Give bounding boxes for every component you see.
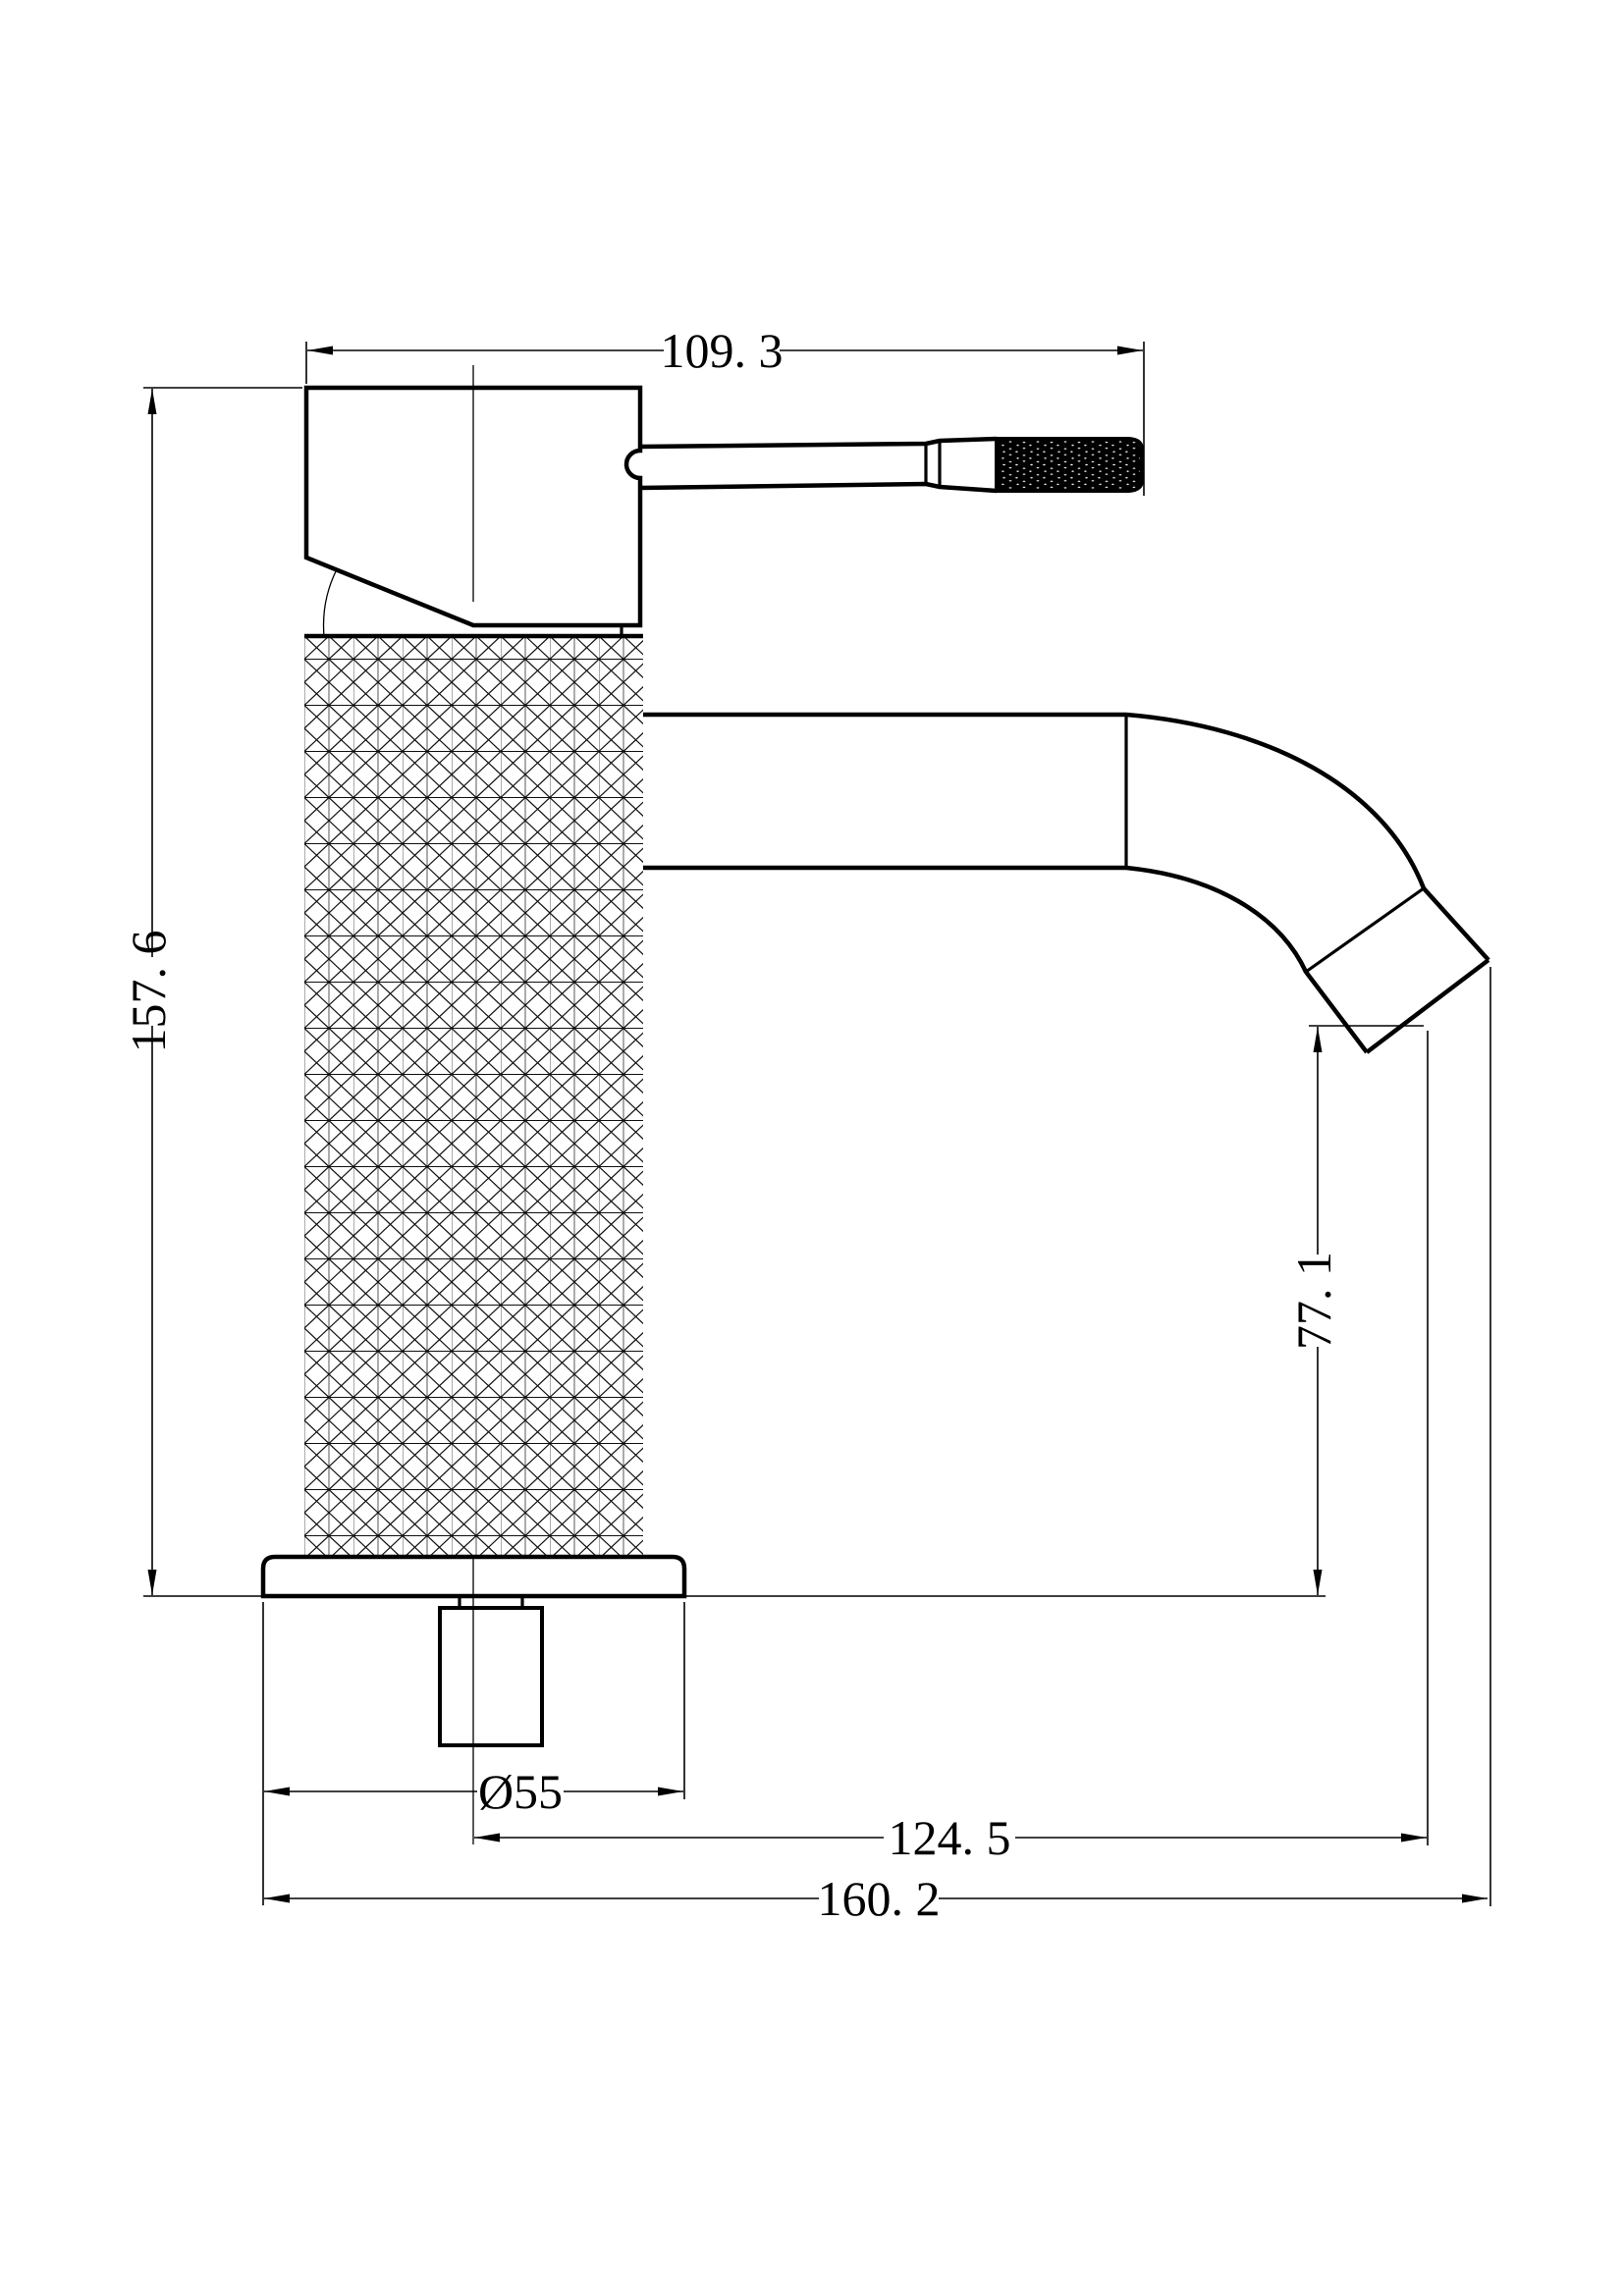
dim-overall-projection-arrow-right xyxy=(1462,1895,1488,1903)
spout xyxy=(643,715,1489,1052)
dim-spout-reach-label: 124. 5 xyxy=(889,1810,1011,1865)
dim-spout-height: 77. 1 xyxy=(1286,1026,1424,1595)
dim-handle-width-label: 109. 3 xyxy=(661,323,784,378)
spout-curve-outer xyxy=(1126,715,1489,960)
dim-overall-height-arrow-bottom xyxy=(148,1570,157,1595)
dim-spout-reach-arrow-right xyxy=(1401,1834,1427,1842)
dim-base-diameter-arrow-right xyxy=(658,1788,683,1796)
lever-grip-knurl xyxy=(997,439,1142,491)
lever-rod-bottom xyxy=(640,484,997,491)
head-bevel-arc xyxy=(324,569,337,636)
dim-base-diameter-label: Ø55 xyxy=(478,1764,563,1819)
dim-spout-height-label: 77. 1 xyxy=(1286,1252,1341,1350)
dim-overall-projection-arrow-left xyxy=(264,1895,290,1903)
drawing-sheet: 109. 3 157. 6 77. 1 Ø55 124. 5 xyxy=(0,0,1624,2296)
dim-spout-height-arrow-top xyxy=(1314,1027,1323,1052)
dim-handle-width-arrow-right xyxy=(1117,347,1143,355)
body-knurl-column xyxy=(304,636,643,1557)
dim-overall-height: 157. 6 xyxy=(121,388,302,1595)
dim-overall-height-label: 157. 6 xyxy=(121,931,176,1053)
lever-handle xyxy=(640,439,1142,491)
dim-spout-reach-arrow-left xyxy=(474,1834,500,1842)
dim-base-diameter-arrow-left xyxy=(264,1788,290,1796)
inlet-stud xyxy=(440,1608,542,1745)
spout-nozzle-joint xyxy=(1306,888,1424,972)
faucet-technical-drawing: 109. 3 157. 6 77. 1 Ø55 124. 5 xyxy=(0,0,1624,2296)
dim-handle-width-arrow-left xyxy=(307,347,333,355)
dim-spout-height-arrow-bottom xyxy=(1314,1570,1323,1595)
spout-curve-inner xyxy=(1126,868,1367,1052)
dim-overall-projection-label: 160. 2 xyxy=(818,1871,941,1926)
dim-overall-height-arrow-top xyxy=(148,389,157,414)
lever-rod-top xyxy=(640,439,997,447)
